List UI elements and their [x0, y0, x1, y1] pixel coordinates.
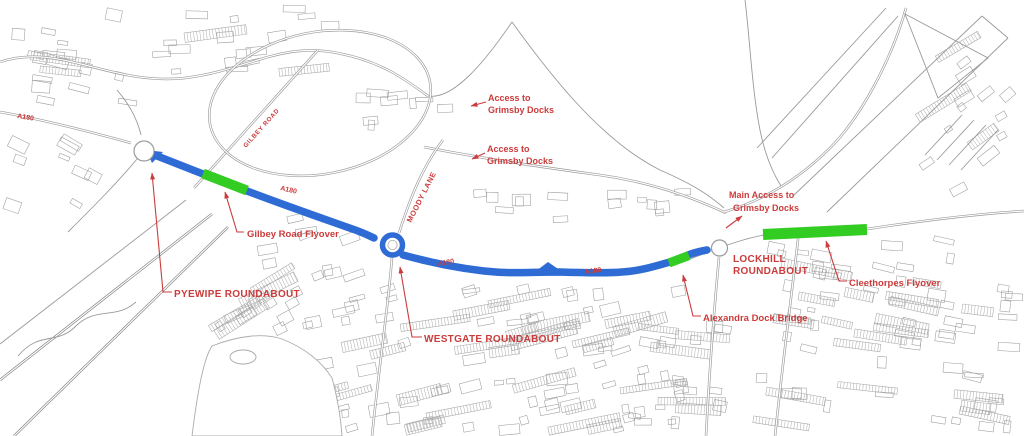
pyewipe-roundabout-circle: [134, 141, 154, 161]
a180-route: [134, 141, 728, 273]
label-gilbey-road-flyover: Gilbey Road Flyover: [247, 229, 339, 240]
label-alexandra-dock-bridge: Alexandra Dock Bridge: [703, 313, 808, 324]
label-main-access-line2: Grimsby Docks: [733, 203, 799, 213]
arrow-alexandra: [683, 275, 701, 316]
pond: [230, 350, 256, 364]
annotation-labels: A180 GILBEY ROAD MOODY LANE A180 A180 A1…: [17, 93, 941, 345]
field-and-pond: [192, 336, 342, 436]
label-lockhill-line1: LOCKHILL: [733, 254, 786, 265]
label-access-mid-line1: Access to: [487, 144, 530, 154]
arrow-cleethorpes: [826, 241, 847, 281]
highlight-cleethorpes-flyover: [763, 230, 867, 235]
lockhill-roundabout-circle: [712, 240, 728, 256]
map-canvas: A180 GILBEY ROAD MOODY LANE A180 A180 A1…: [0, 0, 1024, 436]
road-label-a180-mid1: A180: [280, 185, 298, 196]
a180-route-west-segment: [152, 154, 374, 238]
label-main-access-line1: Main Access to: [729, 190, 795, 200]
label-lockhill-line2: ROUNDABOUT: [733, 266, 808, 277]
a180-scheme-map: A180 GILBEY ROAD MOODY LANE A180 A180 A1…: [0, 0, 1024, 436]
label-access-north-line2: Grimsby Docks: [488, 105, 554, 115]
arrow-access-north: [471, 102, 486, 106]
arrow-gilbey-flyover: [225, 192, 244, 232]
arrow-westgate: [400, 267, 422, 337]
arrow-main-access: [726, 216, 742, 228]
label-pyewipe-roundabout: PYEWIPE ROUNDABOUT: [174, 289, 300, 300]
highlight-gilbey-road-flyover: [203, 174, 247, 191]
road-label-moody-lane: MOODY LANE: [405, 170, 438, 224]
moody-lane-junction: [536, 262, 561, 271]
map-linework-roads: [0, 0, 1024, 436]
arrow-pyewipe: [152, 173, 172, 292]
label-access-north-line1: Access to: [488, 93, 531, 103]
westgate-roundabout-circle: [383, 235, 403, 255]
label-cleethorpes-flyover: Cleethorpes Flyover: [849, 278, 941, 289]
highlight-alexandra-dock-bridge: [669, 256, 689, 264]
road-label-a180-west: A180: [17, 113, 35, 123]
label-access-mid-line2: Grimsby Docks: [487, 156, 553, 166]
label-westgate-roundabout: WESTGATE ROUNDABOUT: [424, 334, 561, 345]
field-outline: [192, 336, 342, 436]
